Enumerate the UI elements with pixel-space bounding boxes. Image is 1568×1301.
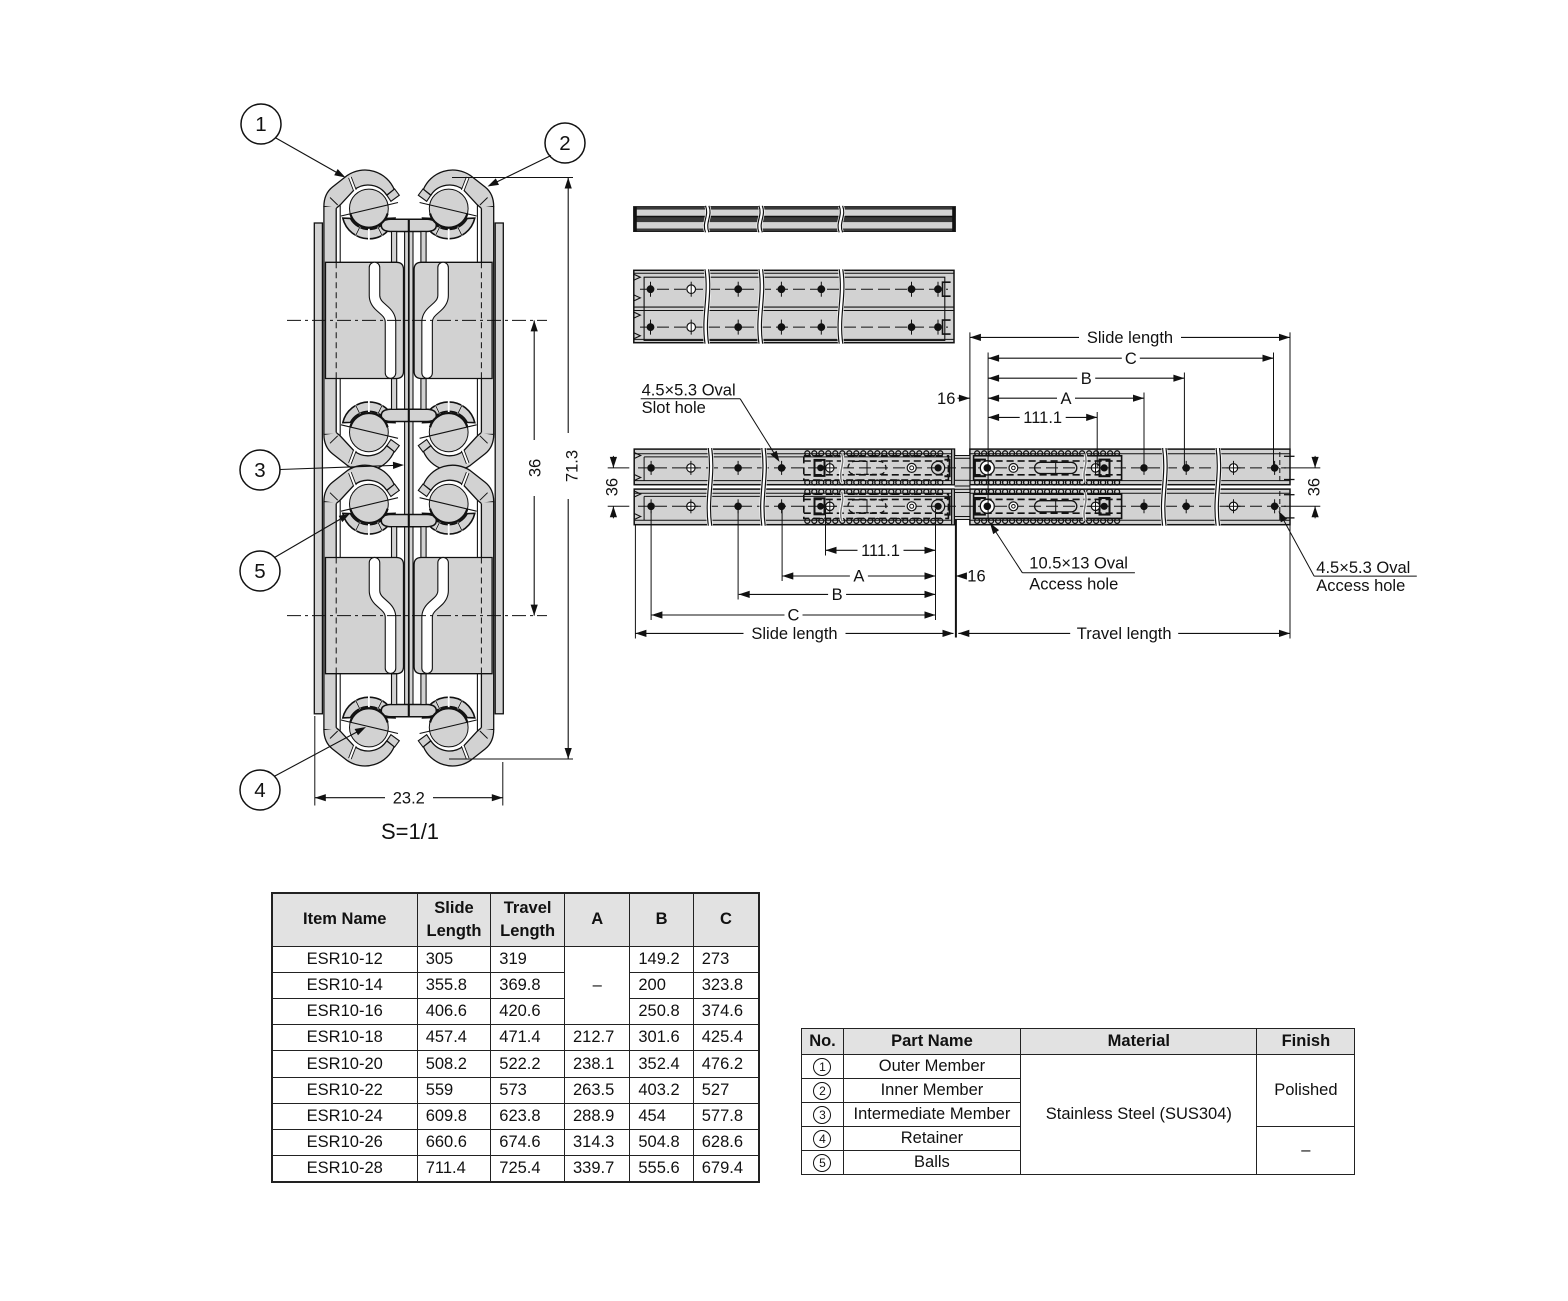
svg-text:Slide length: Slide length	[1087, 329, 1173, 347]
svg-text:A: A	[853, 568, 864, 586]
svg-text:36: 36	[604, 478, 622, 496]
svg-text:71.3: 71.3	[564, 450, 582, 482]
svg-text:4.5×5.3 Oval: 4.5×5.3 Oval	[1316, 559, 1410, 577]
svg-text:C: C	[1125, 350, 1137, 368]
svg-text:Travel length: Travel length	[1077, 625, 1172, 643]
svg-text:C: C	[788, 607, 800, 625]
svg-text:B: B	[832, 586, 843, 604]
svg-text:Access hole: Access hole	[1316, 577, 1405, 595]
svg-text:Slot hole: Slot hole	[642, 399, 706, 417]
svg-text:111.1: 111.1	[861, 542, 900, 560]
svg-text:B: B	[1081, 370, 1092, 388]
svg-text:S=1/1: S=1/1	[381, 819, 439, 844]
svg-text:3: 3	[254, 459, 265, 482]
svg-text:16: 16	[967, 568, 985, 586]
svg-text:10.5×13 Oval: 10.5×13 Oval	[1029, 555, 1128, 573]
svg-text:36: 36	[1305, 478, 1323, 496]
svg-text:36: 36	[527, 459, 545, 477]
svg-text:5: 5	[254, 560, 265, 583]
svg-text:4.5×5.3 Oval: 4.5×5.3 Oval	[642, 382, 736, 400]
svg-text:23.2: 23.2	[393, 790, 425, 808]
svg-text:1: 1	[255, 113, 266, 136]
svg-text:Access hole: Access hole	[1029, 576, 1118, 594]
svg-text:2: 2	[559, 132, 570, 155]
svg-text:16: 16	[937, 390, 955, 408]
svg-text:111.1: 111.1	[1023, 409, 1062, 427]
svg-text:A: A	[1060, 390, 1071, 408]
svg-text:Slide length: Slide length	[751, 625, 837, 643]
svg-text:4: 4	[254, 779, 265, 802]
